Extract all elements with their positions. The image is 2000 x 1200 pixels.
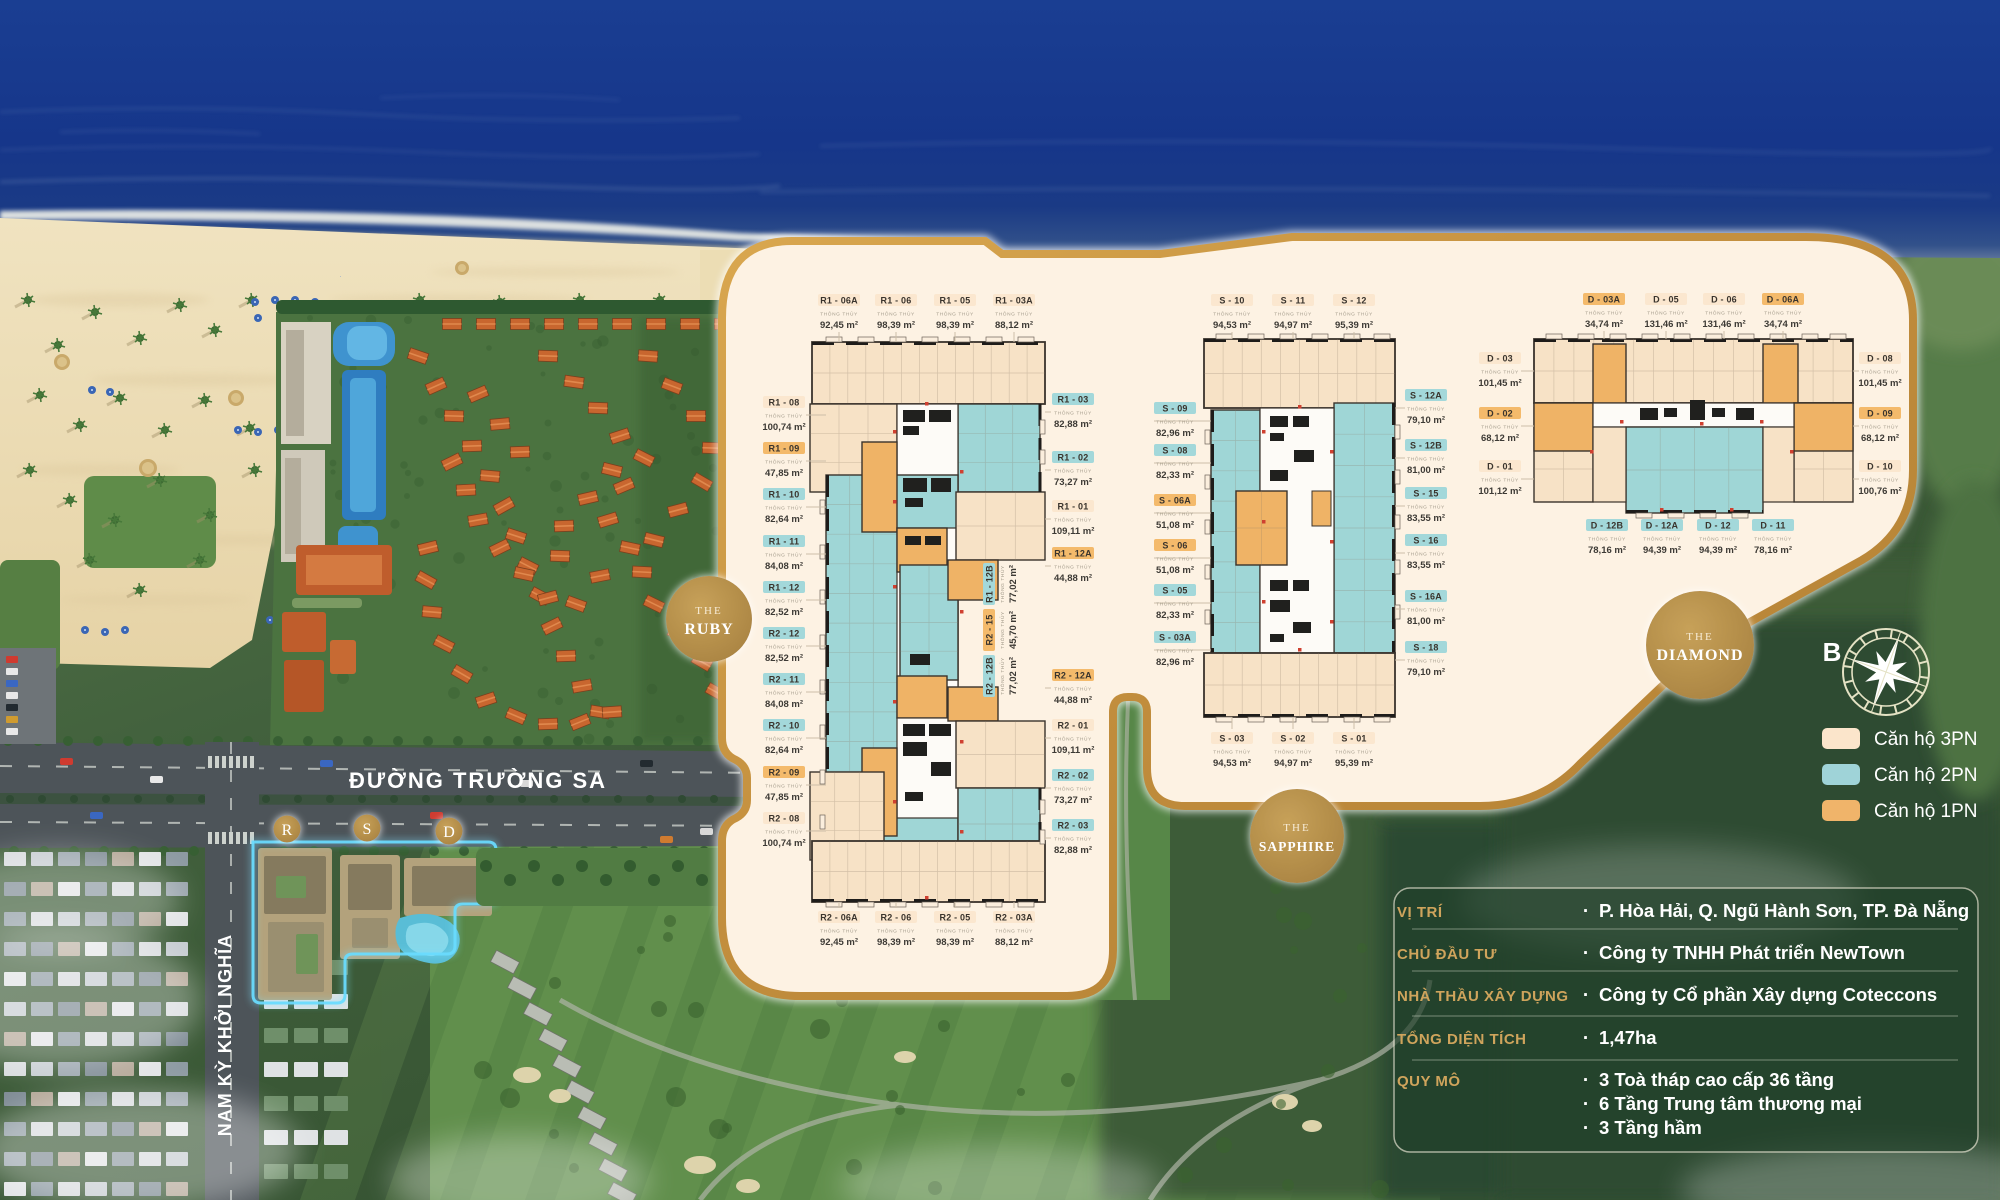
svg-text:88,12 m²: 88,12 m² xyxy=(995,320,1033,331)
svg-text:94,39 m²: 94,39 m² xyxy=(1643,545,1681,556)
svg-text:·: · xyxy=(1583,1094,1589,1115)
svg-text:Căn hộ 1PN: Căn hộ 1PN xyxy=(1874,801,1978,822)
svg-text:R2 - 06A: R2 - 06A xyxy=(820,913,858,923)
svg-text:82,88 m²: 82,88 m² xyxy=(1054,419,1092,430)
svg-text:D - 06A: D - 06A xyxy=(1767,295,1800,305)
svg-text:R2 - 03A: R2 - 03A xyxy=(995,913,1033,923)
svg-text:Căn hộ 2PN: Căn hộ 2PN xyxy=(1874,765,1978,786)
svg-text:R1 - 02: R1 - 02 xyxy=(1058,453,1089,463)
svg-text:S - 12A: S - 12A xyxy=(1410,391,1442,401)
svg-text:S - 18: S - 18 xyxy=(1413,643,1438,653)
svg-text:100,74 m²: 100,74 m² xyxy=(762,422,805,433)
svg-text:R2 - 12A: R2 - 12A xyxy=(1054,671,1092,681)
svg-text:QUY MÔ: QUY MÔ xyxy=(1397,1072,1461,1090)
svg-text:101,12 m²: 101,12 m² xyxy=(1478,486,1521,497)
svg-text:S - 06A: S - 06A xyxy=(1159,496,1191,506)
svg-text:THÔNG THỦY: THÔNG THỦY xyxy=(820,928,858,935)
svg-text:THÔNG THỦY: THÔNG THỦY xyxy=(1054,836,1092,843)
svg-text:THÔNG THỦY: THÔNG THỦY xyxy=(1156,556,1194,563)
svg-text:THÔNG THỦY: THÔNG THỦY xyxy=(1156,511,1194,518)
svg-text:·: · xyxy=(1583,1070,1589,1091)
svg-text:R1 - 12: R1 - 12 xyxy=(769,583,800,593)
svg-text:THÔNG THỦY: THÔNG THỦY xyxy=(1481,477,1519,484)
svg-text:·: · xyxy=(1583,943,1589,964)
svg-text:R1 - 03A: R1 - 03A xyxy=(995,296,1033,306)
svg-text:88,12 m²: 88,12 m² xyxy=(995,937,1033,948)
svg-text:R1 - 09: R1 - 09 xyxy=(769,444,800,454)
svg-text:D - 12: D - 12 xyxy=(1705,521,1731,531)
svg-text:68,12 m²: 68,12 m² xyxy=(1861,433,1899,444)
svg-text:D - 01: D - 01 xyxy=(1487,462,1513,472)
svg-text:THÔNG THỦY: THÔNG THỦY xyxy=(765,459,803,466)
svg-text:S - 16: S - 16 xyxy=(1413,536,1438,546)
svg-text:100,74 m²: 100,74 m² xyxy=(762,838,805,849)
svg-text:·: · xyxy=(1583,901,1589,922)
svg-text:THÔNG THỦY: THÔNG THỦY xyxy=(1861,477,1899,484)
svg-text:S - 02: S - 02 xyxy=(1280,734,1305,744)
svg-text:THÔNG THỦY: THÔNG THỦY xyxy=(1861,424,1899,431)
svg-text:82,64 m²: 82,64 m² xyxy=(765,514,803,525)
svg-text:82,96 m²: 82,96 m² xyxy=(1156,657,1194,668)
svg-text:D - 02: D - 02 xyxy=(1487,409,1513,419)
svg-text:THÔNG THỦY: THÔNG THỦY xyxy=(765,690,803,697)
svg-text:DIAMOND: DIAMOND xyxy=(1657,647,1744,664)
svg-text:D - 12B: D - 12B xyxy=(1591,521,1624,531)
svg-text:CHỦ ĐẦU TƯ: CHỦ ĐẦU TƯ xyxy=(1397,945,1497,963)
svg-text:·: · xyxy=(1583,985,1589,1006)
svg-text:R2 - 05: R2 - 05 xyxy=(940,913,971,923)
svg-text:98,39 m²: 98,39 m² xyxy=(936,320,974,331)
svg-text:95,39 m²: 95,39 m² xyxy=(1335,320,1373,331)
svg-text:THÔNG THỦY: THÔNG THỦY xyxy=(1407,456,1445,463)
svg-text:THÔNG THỦY: THÔNG THỦY xyxy=(877,928,915,935)
svg-text:THÔNG THỦY: THÔNG THỦY xyxy=(1588,536,1626,543)
svg-text:R1 - 12A: R1 - 12A xyxy=(1054,549,1092,559)
svg-text:73,27 m²: 73,27 m² xyxy=(1054,477,1092,488)
svg-text:94,97 m²: 94,97 m² xyxy=(1274,758,1312,769)
svg-text:THÔNG THỦY: THÔNG THỦY xyxy=(999,657,1006,695)
svg-text:131,46 m²: 131,46 m² xyxy=(1702,319,1745,330)
svg-text:84,08 m²: 84,08 m² xyxy=(765,699,803,710)
svg-text:THÔNG THỦY: THÔNG THỦY xyxy=(1407,504,1445,511)
svg-text:94,53 m²: 94,53 m² xyxy=(1213,758,1251,769)
svg-text:R2 - 01: R2 - 01 xyxy=(1058,721,1089,731)
svg-text:THÔNG THỦY: THÔNG THỦY xyxy=(1054,517,1092,524)
svg-text:B: B xyxy=(1823,637,1842,667)
svg-text:D - 03: D - 03 xyxy=(1487,354,1513,364)
svg-text:THÔNG THỦY: THÔNG THỦY xyxy=(999,611,1006,649)
svg-text:S - 05: S - 05 xyxy=(1162,586,1187,596)
svg-text:THÔNG THỦY: THÔNG THỦY xyxy=(765,644,803,651)
svg-text:THÔNG THỦY: THÔNG THỦY xyxy=(1754,536,1792,543)
svg-text:THÔNG THỦY: THÔNG THỦY xyxy=(1054,468,1092,475)
svg-text:47,85 m²: 47,85 m² xyxy=(765,792,803,803)
svg-text:Công ty TNHH Phát triển NewTow: Công ty TNHH Phát triển NewTown xyxy=(1599,942,1905,963)
svg-text:109,11 m²: 109,11 m² xyxy=(1052,745,1095,756)
svg-text:Căn hộ 3PN: Căn hộ 3PN xyxy=(1874,729,1978,750)
svg-text:R2 - 09: R2 - 09 xyxy=(769,768,800,778)
svg-text:THÔNG THỦY: THÔNG THỦY xyxy=(1861,369,1899,376)
svg-text:RUBY: RUBY xyxy=(684,621,733,638)
svg-text:R1 - 10: R1 - 10 xyxy=(769,490,800,500)
svg-text:S - 03: S - 03 xyxy=(1219,734,1244,744)
svg-text:THÔNG THỦY: THÔNG THỦY xyxy=(765,413,803,420)
svg-text:81,00 m²: 81,00 m² xyxy=(1407,465,1445,476)
svg-text:THÔNG THỦY: THÔNG THỦY xyxy=(1156,648,1194,655)
svg-text:44,88 m²: 44,88 m² xyxy=(1054,695,1092,706)
svg-text:THÔNG THỦY: THÔNG THỦY xyxy=(765,736,803,743)
svg-text:131,46 m²: 131,46 m² xyxy=(1644,319,1687,330)
svg-text:R: R xyxy=(282,822,293,839)
svg-text:R1 - 12B: R1 - 12B xyxy=(985,565,995,603)
svg-text:S - 03A: S - 03A xyxy=(1159,633,1191,643)
svg-text:THÔNG THỦY: THÔNG THỦY xyxy=(765,829,803,836)
svg-text:78,16 m²: 78,16 m² xyxy=(1754,545,1792,556)
svg-text:R2 - 08: R2 - 08 xyxy=(769,814,800,824)
svg-text:82,52 m²: 82,52 m² xyxy=(765,653,803,664)
svg-text:THÔNG THỦY: THÔNG THỦY xyxy=(1699,536,1737,543)
svg-text:D - 06: D - 06 xyxy=(1711,295,1737,305)
svg-text:THÔNG THỦY: THÔNG THỦY xyxy=(1054,786,1092,793)
svg-text:R2 - 06: R2 - 06 xyxy=(881,913,912,923)
svg-text:THÔNG THỦY: THÔNG THỦY xyxy=(1213,311,1251,318)
svg-text:45,70 m²: 45,70 m² xyxy=(1008,611,1019,649)
svg-text:S - 15: S - 15 xyxy=(1413,489,1438,499)
svg-text:S: S xyxy=(363,821,372,838)
svg-text:THÔNG THỦY: THÔNG THỦY xyxy=(1274,749,1312,756)
svg-text:THÔNG THỦY: THÔNG THỦY xyxy=(1054,410,1092,417)
svg-text:S - 11: S - 11 xyxy=(1281,296,1306,306)
svg-text:101,45 m²: 101,45 m² xyxy=(1858,378,1901,389)
svg-text:THÔNG THỦY: THÔNG THỦY xyxy=(1705,310,1743,317)
svg-text:D - 10: D - 10 xyxy=(1867,462,1893,472)
svg-text:THÔNG THỦY: THÔNG THỦY xyxy=(1585,310,1623,317)
svg-text:SAPPHIRE: SAPPHIRE xyxy=(1259,839,1335,854)
svg-text:77,02 m²: 77,02 m² xyxy=(1008,657,1019,695)
svg-text:6 Tầng Trung tâm thương mại: 6 Tầng Trung tâm thương mại xyxy=(1599,1093,1862,1114)
svg-text:101,45 m²: 101,45 m² xyxy=(1478,378,1521,389)
svg-text:·: · xyxy=(1583,1028,1589,1049)
svg-text:98,39 m²: 98,39 m² xyxy=(936,937,974,948)
svg-text:R1 - 05: R1 - 05 xyxy=(940,296,971,306)
svg-text:82,64 m²: 82,64 m² xyxy=(765,745,803,756)
svg-text:92,45 m²: 92,45 m² xyxy=(820,937,858,948)
svg-text:THÔNG THỦY: THÔNG THỦY xyxy=(765,598,803,605)
svg-text:82,33 m²: 82,33 m² xyxy=(1156,470,1194,481)
svg-text:R1 - 01: R1 - 01 xyxy=(1058,502,1089,512)
svg-text:94,97 m²: 94,97 m² xyxy=(1274,320,1312,331)
svg-text:THÔNG THỦY: THÔNG THỦY xyxy=(1407,658,1445,665)
svg-text:THÔNG THỦY: THÔNG THỦY xyxy=(1335,749,1373,756)
svg-text:R2 - 03: R2 - 03 xyxy=(1058,821,1089,831)
svg-text:Công ty Cổ phần Xây dựng Cotec: Công ty Cổ phần Xây dựng Coteccons xyxy=(1599,984,1937,1005)
svg-text:R1 - 06A: R1 - 06A xyxy=(820,296,858,306)
svg-text:R1 - 08: R1 - 08 xyxy=(769,398,800,408)
svg-text:95,39 m²: 95,39 m² xyxy=(1335,758,1373,769)
svg-text:94,53 m²: 94,53 m² xyxy=(1213,320,1251,331)
svg-text:ĐƯỜNG TRƯỜNG SA: ĐƯỜNG TRƯỜNG SA xyxy=(349,768,607,793)
svg-text:THÔNG THỦY: THÔNG THỦY xyxy=(765,783,803,790)
svg-text:51,08 m²: 51,08 m² xyxy=(1156,565,1194,576)
svg-text:D - 09: D - 09 xyxy=(1867,409,1893,419)
svg-text:82,88 m²: 82,88 m² xyxy=(1054,845,1092,856)
svg-text:THÔNG THỦY: THÔNG THỦY xyxy=(1156,419,1194,426)
svg-text:D - 05: D - 05 xyxy=(1653,295,1679,305)
svg-text:S - 08: S - 08 xyxy=(1162,446,1187,456)
svg-text:83,55 m²: 83,55 m² xyxy=(1407,513,1445,524)
svg-text:P. Hòa Hải, Q. Ngũ Hành Sơn, T: P. Hòa Hải, Q. Ngũ Hành Sơn, TP. Đà Nẵng xyxy=(1599,899,1969,921)
svg-text:92,45 m²: 92,45 m² xyxy=(820,320,858,331)
svg-text:R2 - 02: R2 - 02 xyxy=(1058,771,1089,781)
svg-text:S - 09: S - 09 xyxy=(1162,404,1187,414)
svg-text:47,85 m²: 47,85 m² xyxy=(765,468,803,479)
svg-text:S - 10: S - 10 xyxy=(1219,296,1244,306)
svg-text:94,39 m²: 94,39 m² xyxy=(1699,545,1737,556)
svg-text:68,12 m²: 68,12 m² xyxy=(1481,433,1519,444)
svg-text:THÔNG THỦY: THÔNG THỦY xyxy=(1481,424,1519,431)
svg-text:S - 01: S - 01 xyxy=(1341,734,1366,744)
svg-text:THÔNG THỦY: THÔNG THỦY xyxy=(1407,607,1445,614)
svg-text:51,08 m²: 51,08 m² xyxy=(1156,520,1194,531)
svg-text:R2 - 11: R2 - 11 xyxy=(769,675,799,685)
svg-text:THÔNG THỦY: THÔNG THỦY xyxy=(1643,536,1681,543)
svg-text:82,52 m²: 82,52 m² xyxy=(765,607,803,618)
svg-text:THÔNG THỦY: THÔNG THỦY xyxy=(1407,406,1445,413)
svg-text:THÔNG THỦY: THÔNG THỦY xyxy=(1335,311,1373,318)
svg-text:THE: THE xyxy=(1686,631,1713,643)
svg-text:THÔNG THỦY: THÔNG THỦY xyxy=(1647,310,1685,317)
svg-text:THÔNG THỦY: THÔNG THỦY xyxy=(1156,601,1194,608)
svg-text:THÔNG THỦY: THÔNG THỦY xyxy=(1054,564,1092,571)
svg-text:NHÀ THẦU XÂY DỰNG: NHÀ THẦU XÂY DỰNG xyxy=(1397,987,1569,1005)
svg-text:79,10 m²: 79,10 m² xyxy=(1407,415,1445,426)
svg-text:D - 12A: D - 12A xyxy=(1646,521,1679,531)
svg-text:THÔNG THỦY: THÔNG THỦY xyxy=(1054,736,1092,743)
svg-text:THÔNG THỦY: THÔNG THỦY xyxy=(1213,749,1251,756)
svg-text:THÔNG THỦY: THÔNG THỦY xyxy=(1274,311,1312,318)
svg-text:S - 12: S - 12 xyxy=(1341,296,1366,306)
svg-text:THE: THE xyxy=(1283,822,1310,834)
svg-text:R1 - 06: R1 - 06 xyxy=(881,296,912,306)
svg-text:34,74 m²: 34,74 m² xyxy=(1764,319,1802,330)
svg-text:THÔNG THỦY: THÔNG THỦY xyxy=(765,505,803,512)
svg-text:D - 11: D - 11 xyxy=(1760,521,1785,531)
svg-text:D: D xyxy=(443,824,455,841)
svg-text:3 Tầng hầm: 3 Tầng hầm xyxy=(1599,1117,1702,1138)
svg-text:R1 - 03: R1 - 03 xyxy=(1058,395,1089,405)
svg-text:34,74 m²: 34,74 m² xyxy=(1585,319,1623,330)
svg-text:THÔNG THỦY: THÔNG THỦY xyxy=(1054,686,1092,693)
svg-text:R2 - 12: R2 - 12 xyxy=(769,629,800,639)
svg-text:THÔNG THỦY: THÔNG THỦY xyxy=(877,311,915,318)
svg-text:D - 08: D - 08 xyxy=(1867,354,1893,364)
svg-text:THÔNG THỦY: THÔNG THỦY xyxy=(1764,310,1802,317)
svg-text:1,47ha: 1,47ha xyxy=(1599,1027,1657,1048)
svg-text:·: · xyxy=(1583,1118,1589,1139)
svg-text:TỔNG DIỆN TÍCH: TỔNG DIỆN TÍCH xyxy=(1397,1030,1527,1048)
svg-text:79,10 m²: 79,10 m² xyxy=(1407,667,1445,678)
svg-text:THÔNG THỦY: THÔNG THỦY xyxy=(1407,551,1445,558)
svg-text:R2 - 15: R2 - 15 xyxy=(985,615,995,646)
svg-text:77,02 m²: 77,02 m² xyxy=(1008,565,1019,603)
svg-text:R2 - 10: R2 - 10 xyxy=(769,721,800,731)
svg-text:100,76 m²: 100,76 m² xyxy=(1858,486,1901,497)
svg-text:109,11 m²: 109,11 m² xyxy=(1052,526,1095,537)
svg-text:82,96 m²: 82,96 m² xyxy=(1156,428,1194,439)
svg-text:THÔNG THỦY: THÔNG THỦY xyxy=(1481,369,1519,376)
svg-text:84,08 m²: 84,08 m² xyxy=(765,561,803,572)
svg-text:S - 06: S - 06 xyxy=(1162,541,1187,551)
svg-text:THÔNG THỦY: THÔNG THỦY xyxy=(1156,461,1194,468)
svg-text:82,33 m²: 82,33 m² xyxy=(1156,610,1194,621)
svg-text:3 Toà tháp cao cấp 36 tầng: 3 Toà tháp cao cấp 36 tầng xyxy=(1599,1069,1834,1090)
svg-text:THE: THE xyxy=(695,605,722,617)
svg-text:R1 - 11: R1 - 11 xyxy=(769,537,799,547)
svg-text:73,27 m²: 73,27 m² xyxy=(1054,795,1092,806)
svg-text:98,39 m²: 98,39 m² xyxy=(877,937,915,948)
svg-text:THÔNG THỦY: THÔNG THỦY xyxy=(765,552,803,559)
svg-text:83,55 m²: 83,55 m² xyxy=(1407,560,1445,571)
svg-text:THÔNG THỦY: THÔNG THỦY xyxy=(999,565,1006,603)
svg-text:S - 16A: S - 16A xyxy=(1410,592,1442,602)
svg-text:S - 12B: S - 12B xyxy=(1410,441,1442,451)
svg-text:THÔNG THỦY: THÔNG THỦY xyxy=(995,928,1033,935)
svg-text:78,16 m²: 78,16 m² xyxy=(1588,545,1626,556)
svg-text:VỊ TRÍ: VỊ TRÍ xyxy=(1397,904,1443,921)
svg-text:THÔNG THỦY: THÔNG THỦY xyxy=(995,311,1033,318)
svg-text:D - 03A: D - 03A xyxy=(1588,295,1621,305)
svg-text:44,88 m²: 44,88 m² xyxy=(1054,573,1092,584)
svg-text:THÔNG THỦY: THÔNG THỦY xyxy=(936,311,974,318)
svg-text:R2 - 12B: R2 - 12B xyxy=(985,657,995,695)
svg-text:98,39 m²: 98,39 m² xyxy=(877,320,915,331)
svg-text:THÔNG THỦY: THÔNG THỦY xyxy=(820,311,858,318)
svg-text:THÔNG THỦY: THÔNG THỦY xyxy=(936,928,974,935)
svg-text:81,00 m²: 81,00 m² xyxy=(1407,616,1445,627)
